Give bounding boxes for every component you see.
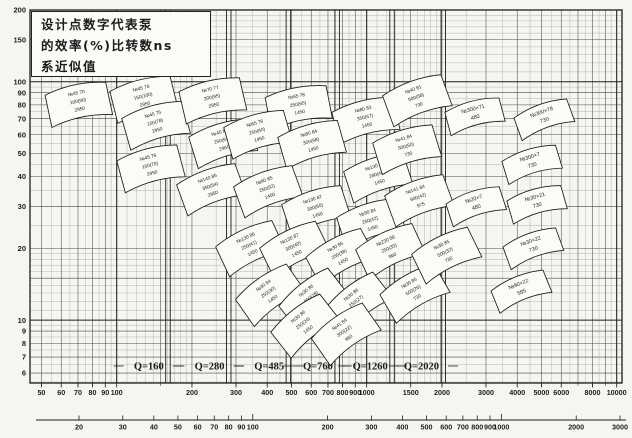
second-axis-label: 50	[174, 423, 182, 432]
pump-box: №300×78730	[513, 95, 575, 140]
x-axis: 5060708090100200300400500600700800900100…	[37, 383, 626, 397]
x-tick-label: 80	[88, 388, 96, 397]
legend-box: 设计点数字代表泵 的效率(%)比转数ns 系近似值	[31, 11, 211, 77]
second-axis-label: 60	[194, 423, 202, 432]
x-tick-label: 1500	[403, 388, 419, 397]
x-tick-label: 800	[336, 388, 348, 397]
x-tick-label: 70	[74, 388, 82, 397]
second-axis-label: 400	[396, 423, 408, 432]
pump-box: №30×21730	[506, 182, 568, 224]
scanned-pump-chart-page: Q=160Q=280Q=485Q=760Q=1260Q=202050607080…	[0, 0, 632, 438]
second-axis-label: 800	[471, 423, 483, 432]
second-axis-label: 2000	[568, 423, 584, 432]
q-label: Q=2020	[404, 362, 439, 373]
second-axis-label: 700	[457, 423, 469, 432]
pump-box: №30×22730	[502, 224, 564, 269]
legend-line-2: 的效率(%)比转数ns	[41, 35, 210, 56]
y-tick-label: 50	[18, 149, 26, 158]
pump-box: №45 70100(90)2950	[44, 78, 112, 127]
y-tick-label: 10	[18, 316, 26, 325]
second-axis-label: 70	[210, 423, 218, 432]
y-tick-label: 70	[18, 114, 26, 123]
second-axis-label: 80	[225, 423, 233, 432]
second-axis-label: 1000	[493, 423, 509, 432]
x-tick-label: 1000	[359, 388, 375, 397]
y-tick-label: 7	[22, 353, 26, 362]
y-axis: 2001501009080706050403020109876	[13, 6, 26, 378]
x-tick-label: 200	[186, 388, 198, 397]
x-tick-label: 90	[101, 388, 109, 397]
y-tick-label: 80	[18, 100, 26, 109]
second-axis-label: 600	[440, 423, 452, 432]
pump-box: №300×7730	[501, 141, 563, 184]
second-axis-label: 3000	[612, 423, 628, 432]
y-tick-label: 40	[18, 172, 26, 181]
y-tick-label: 6	[22, 369, 26, 378]
q-label: Q=1260	[353, 362, 388, 373]
x-tick-label: 50	[37, 388, 45, 397]
second-axis-label: 200	[322, 423, 334, 432]
second-axis-label: 40	[150, 423, 158, 432]
y-tick-label: 200	[13, 6, 26, 15]
x-tick-label: 400	[261, 388, 273, 397]
y-tick-label: 60	[18, 130, 26, 139]
second-axis-label: 100	[247, 423, 259, 432]
y-tick-label: 90	[18, 88, 26, 97]
y-tick-label: 8	[22, 339, 26, 348]
pump-box: №90×22585	[490, 266, 552, 313]
x-tick-label: 4000	[509, 388, 525, 397]
pump-box: №45 76150(70)2950	[116, 141, 185, 193]
x-tick-label: 8000	[584, 388, 600, 397]
q-label: Q=280	[195, 362, 225, 373]
y-tick-label: 100	[13, 77, 26, 86]
second-axis-label: 90	[237, 423, 245, 432]
y-tick-label: 9	[22, 327, 26, 336]
second-axis-label: 500	[421, 423, 433, 432]
legend-line-1: 设计点数字代表泵	[41, 14, 210, 35]
x-tick-label: 600	[305, 388, 317, 397]
q-label: Q=485	[254, 362, 284, 373]
x-tick-label: 700	[322, 388, 334, 397]
pump-box: №20×7480	[445, 183, 507, 227]
pump-box: №300×71480	[444, 94, 505, 136]
x-tick-label: 3000	[478, 388, 494, 397]
x-tick-label: 5000	[533, 388, 549, 397]
legend-line-3: 系近似值	[41, 56, 210, 77]
x-tick-label: 60	[57, 388, 65, 397]
y-tick-label: 150	[13, 35, 26, 44]
second-axis-label: 30	[119, 423, 127, 432]
pump-boxes: №45 70100(90)2950№45 76150(100)2950№45 7…	[44, 71, 575, 366]
q-label: Q=160	[134, 362, 164, 373]
x-tick-label: 2000	[434, 388, 450, 397]
y-tick-label: 20	[18, 244, 26, 253]
x-tick-label: 10000	[607, 388, 627, 397]
x-tick-label: 100	[111, 388, 123, 397]
x-tick-label: 6000	[553, 388, 569, 397]
second-axis-label: 300	[365, 423, 377, 432]
second-axis: 2030405060708090100200300400500600700800…	[36, 414, 628, 432]
y-tick-label: 30	[18, 202, 26, 211]
x-tick-label: 500	[285, 388, 297, 397]
second-axis-label: 20	[75, 423, 83, 432]
x-tick-label: 300	[230, 388, 242, 397]
